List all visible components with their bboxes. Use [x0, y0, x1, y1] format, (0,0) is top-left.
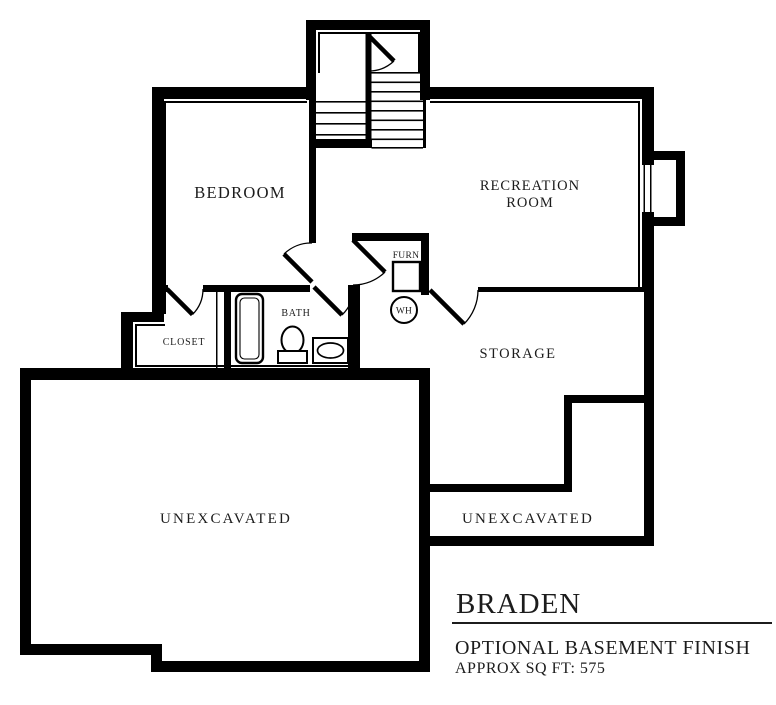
closet-label: CLOSET [163, 337, 206, 348]
plan-subtitle: OPTIONAL BASEMENT FINISH [455, 637, 751, 659]
hall-storage-door [353, 240, 385, 285]
storage-rec-door [430, 290, 478, 324]
staircase [309, 34, 426, 149]
basement-floor-plan: BEDROOM RECREATION ROOM STORAGE BATH CLO… [0, 0, 776, 705]
bedroom-label: BEDROOM [194, 183, 286, 202]
furnace [393, 262, 420, 291]
water-heater-label: WH [396, 307, 412, 317]
stair-top-door [368, 35, 394, 71]
bedroom-door [284, 243, 312, 282]
furnace-label: FURN [393, 251, 420, 261]
recreation-room-label-line1: RECREATION [480, 178, 580, 194]
title-block: BRADEN OPTIONAL BASEMENT FINISH APPROX S… [452, 588, 772, 677]
title-rule [452, 622, 772, 624]
storage-label: STORAGE [479, 346, 556, 362]
recreation-room-label-line2: ROOM [506, 195, 554, 211]
plan-area-note: APPROX SQ FT: 575 [455, 660, 605, 677]
plan-name: BRADEN [456, 588, 581, 620]
closet-door [167, 289, 203, 315]
bath-label: BATH [281, 308, 310, 319]
bathtub [236, 294, 263, 363]
fixtures [236, 262, 420, 363]
toilet [278, 327, 307, 364]
unexcavated-right-label: UNEXCAVATED [462, 511, 594, 527]
unexcavated-left-label: UNEXCAVATED [160, 511, 292, 527]
bath-sink [313, 338, 348, 363]
doors [167, 35, 478, 324]
